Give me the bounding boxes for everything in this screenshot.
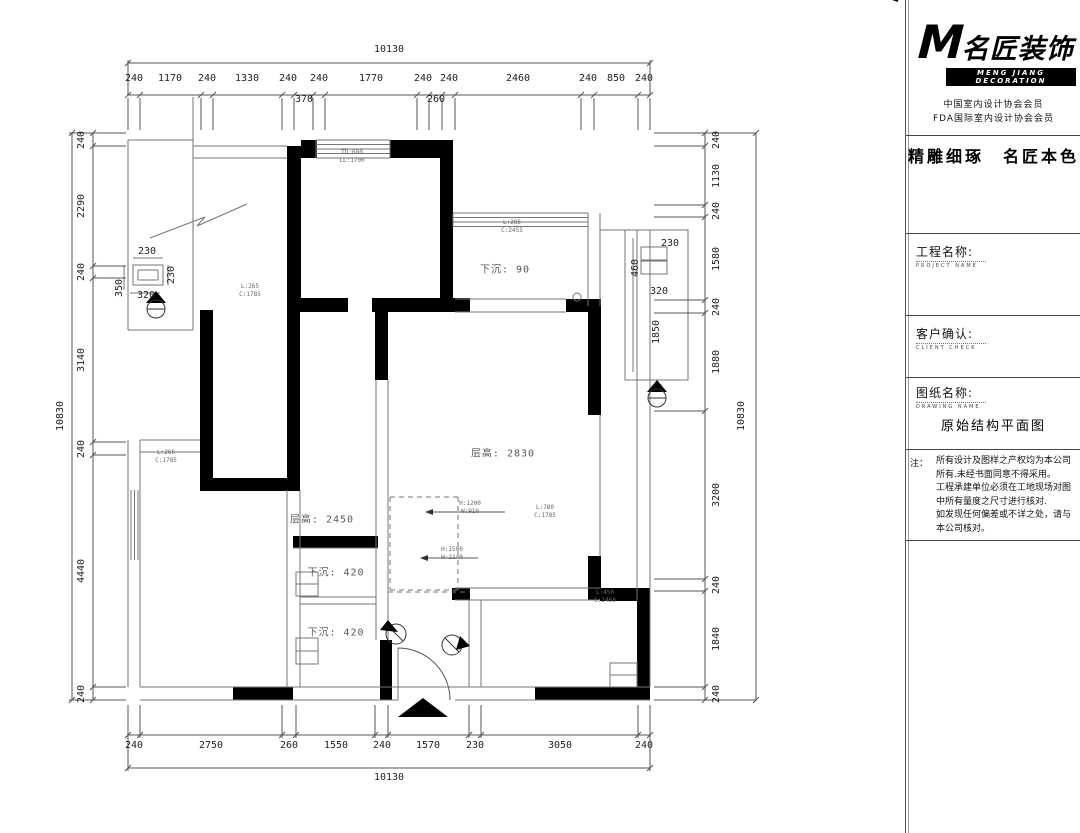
room-label-height-2450: 层高: 2450	[290, 511, 354, 526]
field-sublabel: PROJECT NAME	[916, 261, 986, 269]
note-line: 所有设计及图样之产权均为本公司	[936, 455, 1080, 469]
field-client-confirm: 客户确认: CLIENT CHECK	[916, 325, 986, 351]
room-label-sunken-90: 下沉: 90	[480, 261, 530, 276]
beam-label: L:265	[157, 450, 175, 456]
logo-english-text: MENG JIANG DECORATION	[975, 69, 1046, 85]
dim-label: 320	[650, 287, 668, 297]
dim-label: 3200	[712, 483, 722, 507]
dim-label: 1580	[712, 247, 722, 271]
note-line: 工程承建单位必须在工地现场对图	[936, 482, 1080, 496]
beam-label: L:265	[241, 284, 259, 290]
logo-m-icon: M	[913, 22, 967, 62]
dim-label: 240	[125, 74, 143, 84]
dim-label: 230	[466, 741, 484, 751]
dim-label: 3140	[77, 348, 87, 372]
membership-line-2: FDA国际室内设计协会会员	[906, 111, 1080, 124]
entrance-arrow-icon	[398, 698, 448, 717]
dim-line	[93, 133, 126, 700]
field-sublabel: DRAWING NAME	[916, 402, 986, 410]
dim-label: 240	[77, 131, 87, 149]
dim-label: 1570	[416, 741, 440, 751]
dim-label: 1840	[712, 627, 722, 651]
dim-label: 4440	[77, 559, 87, 583]
notes-block: 注： 所有设计及图样之产权均为本公司 所有.未经书面同意不得采用。 工程承建单位…	[910, 455, 1080, 536]
room-label-height-2830: 层高: 2830	[471, 445, 535, 460]
note-line: 所有.未经书面同意不得采用。	[936, 469, 1080, 483]
dim-label: 2290	[77, 194, 87, 218]
floorplan-sheet: 10130 240 1170 240 1330 240 370 240 1770…	[0, 0, 1080, 833]
note-line: 中所有量度之尺寸进行核对.	[936, 496, 1080, 510]
room-label-sunken-420: 下沉: 420	[307, 564, 364, 579]
notes-label: 注：	[910, 456, 928, 469]
dim-label: 1850	[652, 320, 662, 344]
beam-label: L:450	[596, 590, 614, 596]
divider	[906, 540, 1080, 541]
dim-label: 350	[115, 279, 125, 297]
dim-total-bottom: 10130	[374, 773, 404, 783]
bay-window-label: LL:1700	[339, 158, 364, 164]
dim-label: 240	[77, 263, 87, 281]
leader-label: W:910	[461, 509, 479, 515]
divider	[906, 377, 1080, 378]
dim-total-top: 10130	[374, 45, 404, 55]
beam-label: C:1785	[239, 292, 261, 298]
note-line: 本公司核对。	[936, 523, 1080, 537]
dim-label: 240	[579, 74, 597, 84]
dim-label: 2460	[506, 74, 530, 84]
divider	[906, 233, 1080, 234]
dim-label: 230	[167, 266, 177, 284]
leader-label: H:1500	[441, 547, 463, 553]
dim-label: 240	[414, 74, 432, 84]
leader-label: H:1200	[459, 501, 481, 507]
dim-label: 240	[77, 685, 87, 703]
dim-total-left: 10830	[56, 401, 66, 431]
dim-line	[654, 133, 705, 700]
dim-label: 240	[77, 440, 87, 458]
dim-label: 2750	[199, 741, 223, 751]
field-label: 图纸名称:	[916, 384, 986, 401]
field-drawing-name: 图纸名称: DRAWING NAME	[916, 384, 986, 410]
beam-label: L:285	[503, 220, 521, 226]
beam-label: C:2455	[501, 228, 523, 234]
beam-label: C:1785	[155, 458, 177, 464]
field-label: 客户确认:	[916, 325, 986, 342]
dim-label: 260	[427, 95, 445, 105]
dim-label: 260	[280, 741, 298, 751]
dim-label: 230	[138, 247, 156, 257]
bay-window-label: TD:680	[341, 150, 363, 156]
leader-label: W:2140	[441, 555, 463, 561]
dim-label: 230	[661, 239, 679, 249]
room-label-sunken-420: 下沉: 420	[307, 624, 364, 639]
dim-line	[128, 705, 650, 738]
dim-label: 1130	[712, 164, 722, 188]
divider	[906, 449, 1080, 450]
beam-label: C:1460	[594, 598, 616, 604]
divider	[906, 315, 1080, 316]
dim-label: 240	[125, 741, 143, 751]
field-project-name: 工程名称: PROJECT NAME	[916, 243, 986, 269]
logo-company-name: 名匠装饰	[962, 34, 1074, 65]
divider	[906, 135, 1080, 136]
note-line: 如发现任何偏差或不详之处，请与	[936, 509, 1080, 523]
dim-label: 850	[607, 74, 625, 84]
titleblock: M名匠装饰 MENG JIANG DECORATION 中国室内设计协会会员 F…	[905, 0, 1080, 833]
company-logo: M名匠装饰 MENG JIANG DECORATION	[918, 22, 1078, 86]
dim-label: 1170	[158, 74, 182, 84]
dim-label: 240	[440, 74, 458, 84]
field-label: 工程名称:	[916, 243, 986, 260]
dim-label: 3050	[548, 741, 572, 751]
dim-label: 320	[137, 291, 155, 301]
beam-label: C:1785	[534, 513, 556, 519]
floorplan-linework	[0, 0, 905, 833]
dim-label: 240	[635, 74, 653, 84]
field-sublabel: CLIENT CHECK	[916, 343, 986, 351]
dim-label: 240	[198, 74, 216, 84]
company-slogan: 精雕细琢 名匠本色	[906, 143, 1080, 167]
leader-arrows	[420, 509, 433, 561]
dim-label: 240	[712, 685, 722, 703]
dim-label: 240	[310, 74, 328, 84]
dim-label: 1770	[359, 74, 383, 84]
dim-label: 240	[712, 298, 722, 316]
dim-label: 240	[712, 576, 722, 594]
dim-label: 240	[279, 74, 297, 84]
beam-label: L:780	[536, 505, 554, 511]
dim-total-right: 10830	[737, 401, 747, 431]
dim-label: 460	[631, 259, 641, 277]
dim-line	[128, 98, 650, 130]
structural-walls	[200, 140, 650, 700]
dim-label: 1880	[712, 350, 722, 374]
membership-line-1: 中国室内设计协会会员	[906, 97, 1080, 110]
dim-label: 240	[712, 131, 722, 149]
drawing-title: 原始结构平面图	[906, 415, 1080, 434]
dim-label: 370	[295, 95, 313, 105]
dim-label: 1330	[235, 74, 259, 84]
dim-label: 240	[373, 741, 391, 751]
dim-label: 1550	[324, 741, 348, 751]
dim-label: 240	[635, 741, 653, 751]
logo-english-name: MENG JIANG DECORATION	[946, 68, 1076, 86]
dim-label: 240	[712, 202, 722, 220]
